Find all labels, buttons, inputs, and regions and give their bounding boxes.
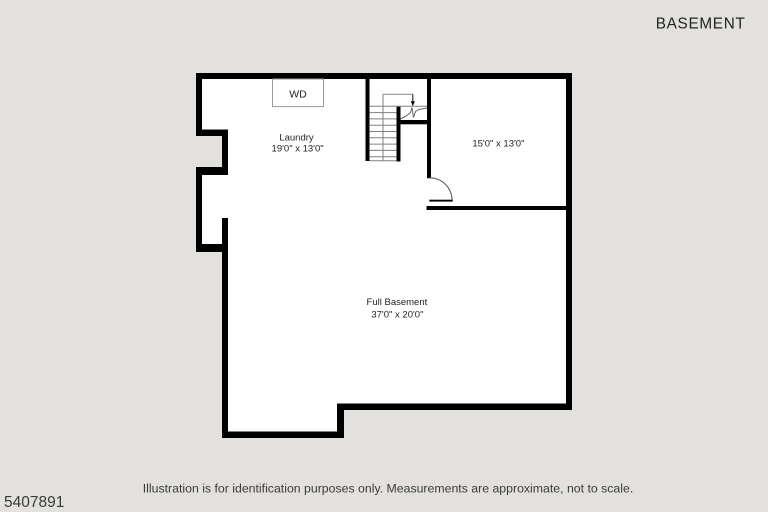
svg-text:19'0" x 13'0": 19'0" x 13'0": [272, 144, 324, 155]
svg-text:37'0" x 20'0": 37'0" x 20'0": [371, 310, 423, 321]
svg-text:15'0" x 13'0": 15'0" x 13'0": [472, 139, 524, 150]
svg-text:Full Basement: Full Basement: [367, 297, 428, 308]
svg-text:WD: WD: [289, 89, 307, 101]
svg-text:Illustration is for identifica: Illustration is for identification purpo…: [143, 482, 634, 496]
svg-text:Laundry: Laundry: [279, 133, 314, 144]
svg-text:BASEMENT: BASEMENT: [656, 16, 746, 33]
svg-text:5407891: 5407891: [4, 494, 64, 511]
